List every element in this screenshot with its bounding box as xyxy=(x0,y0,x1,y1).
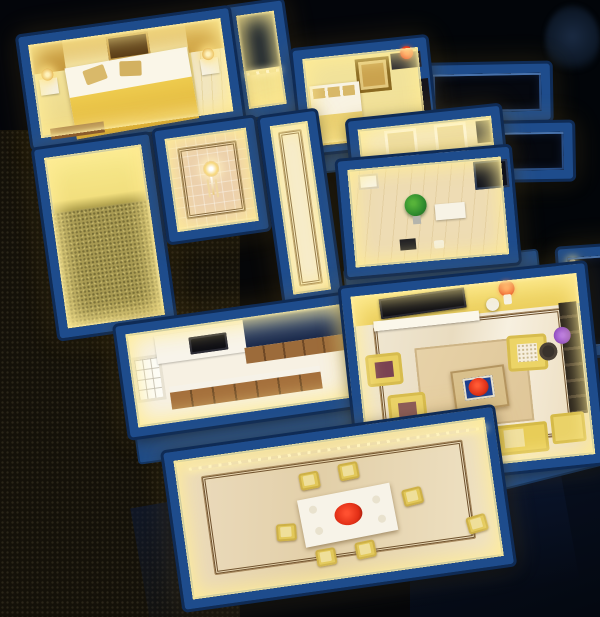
dining-chair-3 xyxy=(276,523,297,541)
dining-chair-7 xyxy=(465,513,489,535)
place-setting-4 xyxy=(377,514,386,523)
dark-doorway xyxy=(475,120,493,144)
white-vase xyxy=(503,294,512,305)
chair-cushion xyxy=(303,474,316,486)
study xyxy=(338,147,519,278)
armchair-left-2-cushion xyxy=(398,402,418,420)
green-plant xyxy=(404,193,428,217)
white-item xyxy=(434,240,445,249)
armchair-left-1-cushion xyxy=(375,361,395,379)
chair-cushion xyxy=(342,465,355,477)
hallway-inlay xyxy=(279,130,322,286)
pillow-left xyxy=(82,64,108,86)
chair-cushion xyxy=(280,527,292,538)
armchair-right-cushion xyxy=(517,343,538,362)
coffee-table xyxy=(450,364,509,413)
ornate-rug xyxy=(355,56,392,93)
wall-picture xyxy=(358,173,379,190)
apartment-model xyxy=(14,0,600,617)
pillows-row xyxy=(312,85,355,99)
chair-cushion xyxy=(319,551,332,563)
bathroom xyxy=(154,117,269,242)
olive-carpet xyxy=(52,200,165,329)
door-frame-2 xyxy=(434,121,469,154)
chair-cushion xyxy=(470,517,483,530)
place-setting-1 xyxy=(308,505,317,514)
dining-chair-4 xyxy=(315,547,338,567)
carpet-room xyxy=(34,134,175,338)
dark-window-panel xyxy=(473,159,509,190)
place-setting-3 xyxy=(371,495,380,504)
closet-dark-section xyxy=(236,11,281,72)
sofa-cushion-3 xyxy=(503,428,525,448)
photo-stage xyxy=(0,0,600,617)
dining-chair-5 xyxy=(354,539,377,560)
white-desk xyxy=(435,202,466,221)
place-setting-2 xyxy=(314,526,323,535)
sofa-end-seat xyxy=(550,411,587,444)
black-chair xyxy=(400,238,417,250)
red-flower-centerpiece xyxy=(333,501,365,528)
chair-cushion xyxy=(406,490,419,502)
armchair-left-1 xyxy=(365,352,404,388)
chair-cushion xyxy=(359,543,372,555)
pillow-right xyxy=(119,61,142,77)
plant-pot xyxy=(413,216,422,225)
